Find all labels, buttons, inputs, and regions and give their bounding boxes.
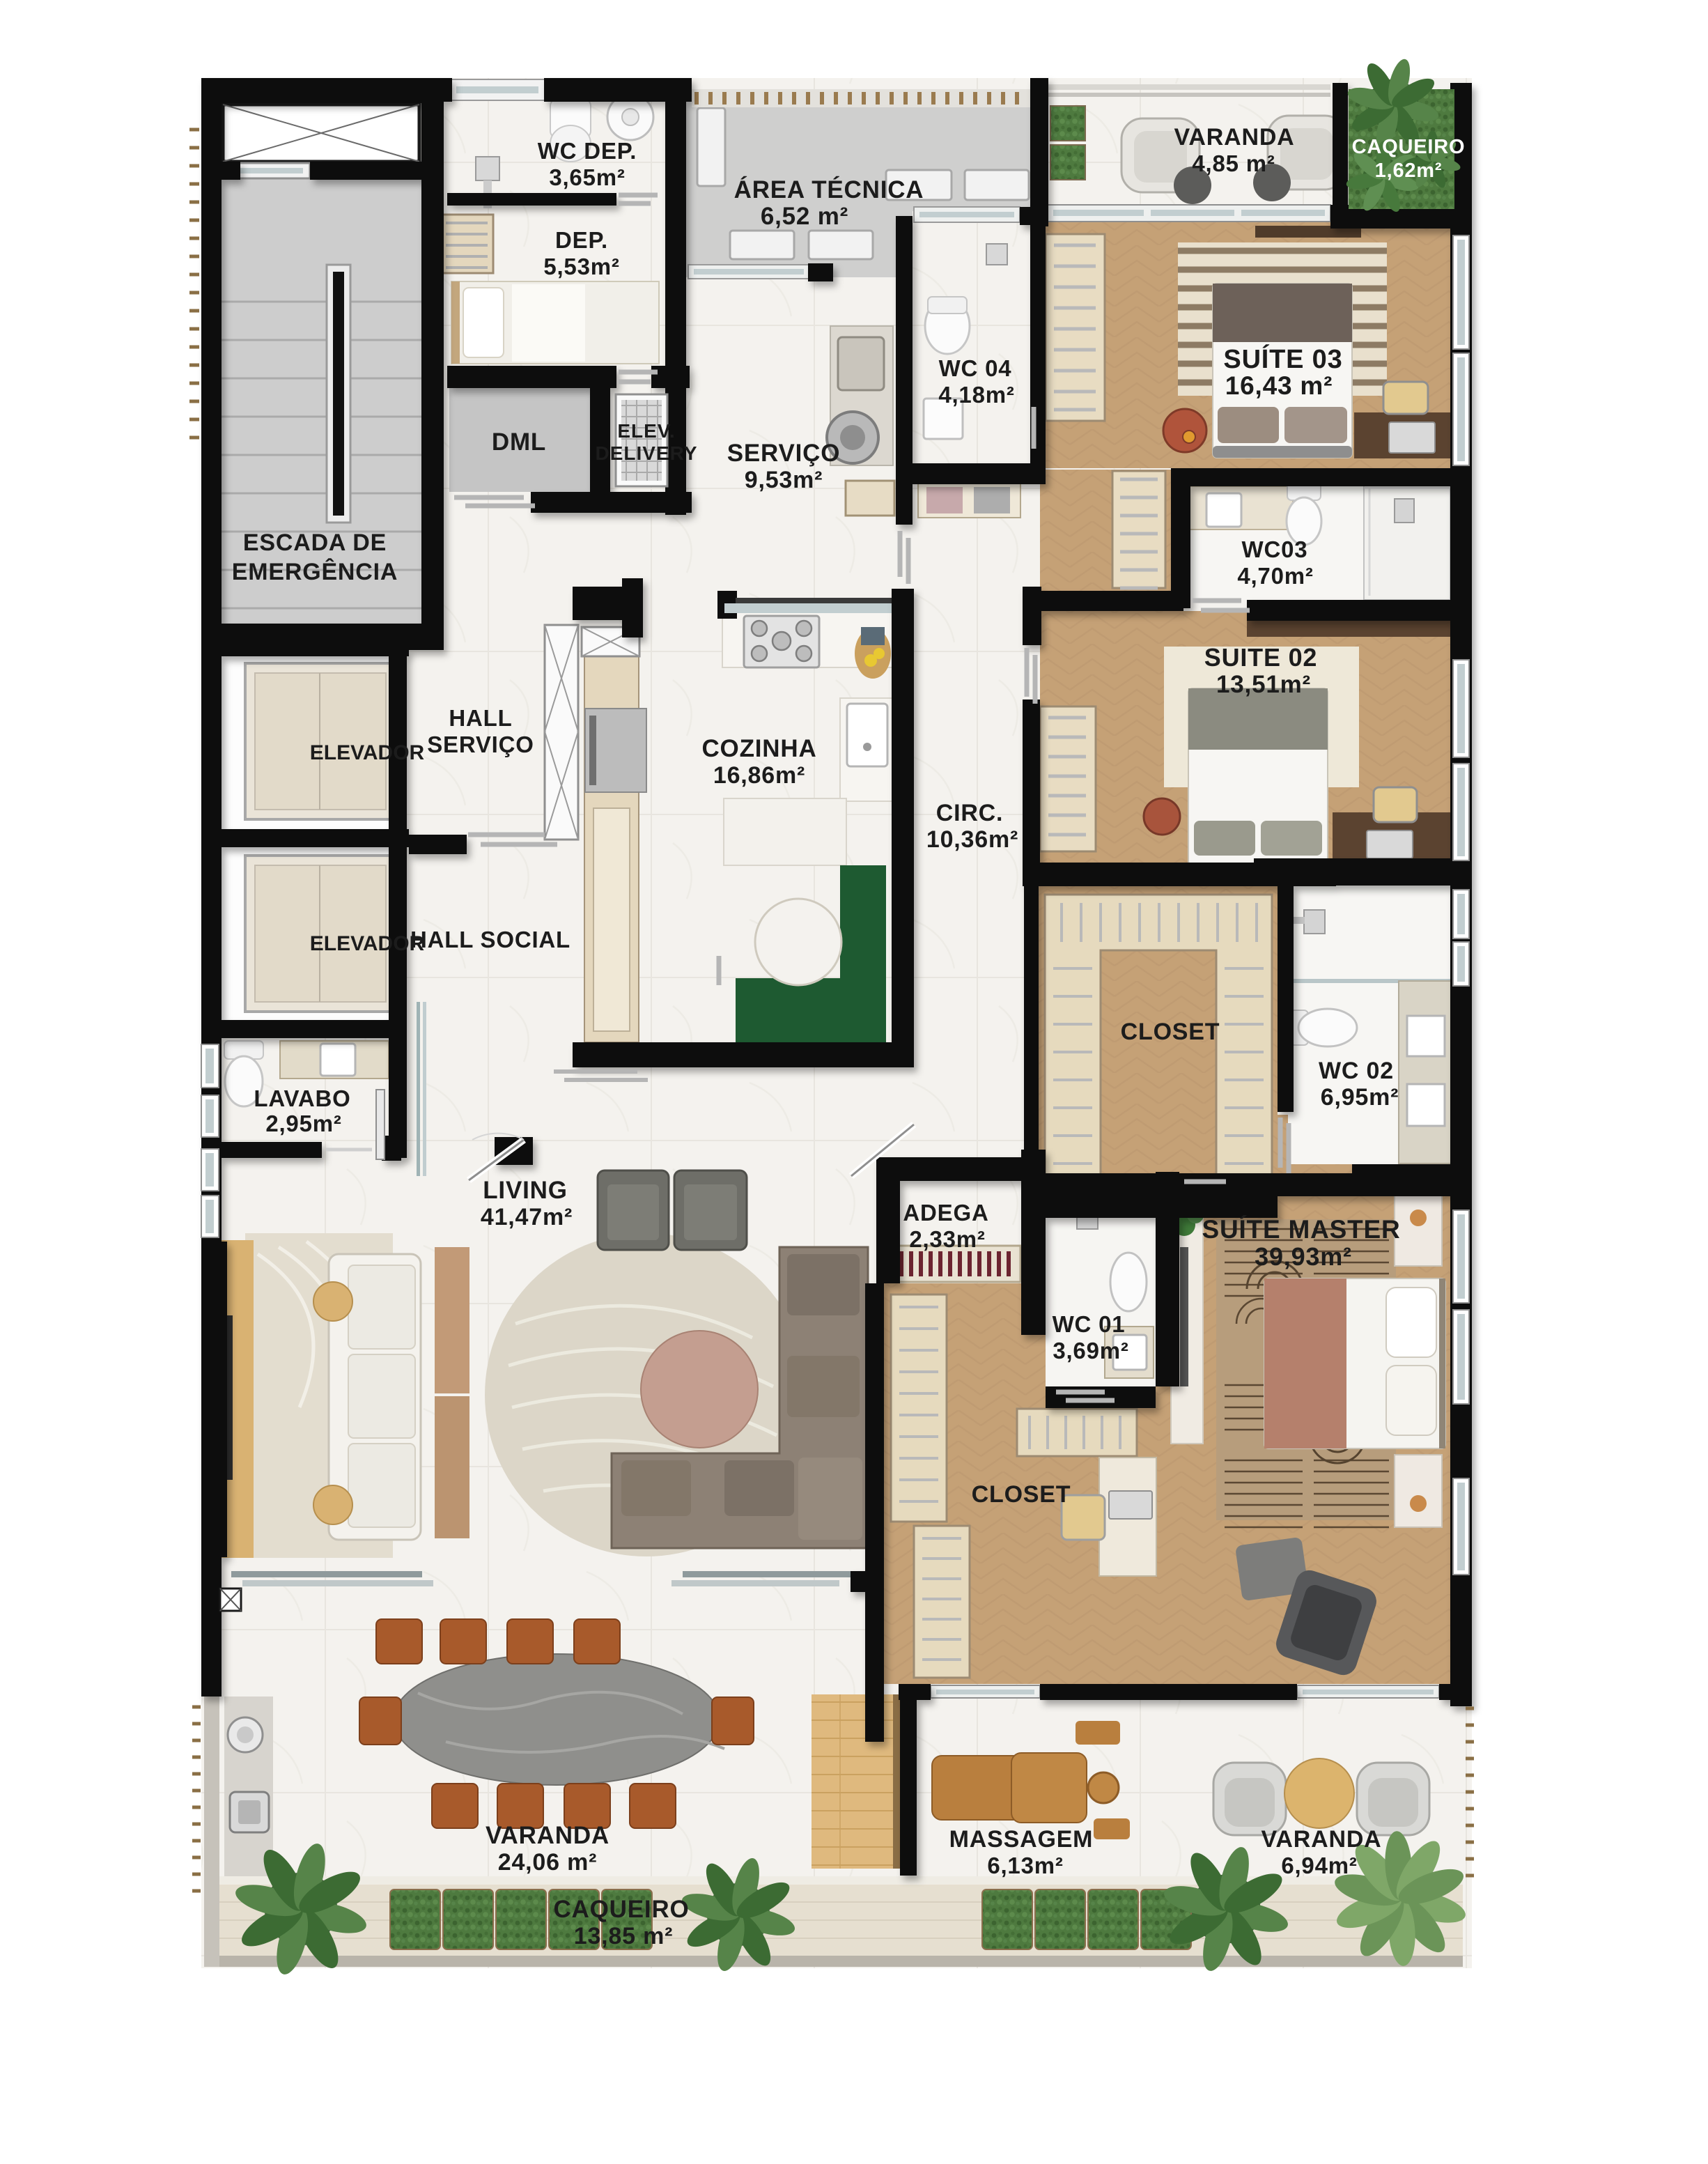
svg-text:39,93m²: 39,93m² bbox=[1255, 1242, 1352, 1271]
svg-text:10,36m²: 10,36m² bbox=[926, 826, 1018, 853]
svg-text:5,53m²: 5,53m² bbox=[543, 254, 619, 279]
svg-text:CAQUEIRO: CAQUEIRO bbox=[1352, 136, 1466, 158]
svg-text:COZINHA: COZINHA bbox=[701, 735, 816, 762]
svg-text:SUÍTE 03: SUÍTE 03 bbox=[1223, 343, 1342, 374]
svg-text:2,95m²: 2,95m² bbox=[265, 1111, 341, 1136]
svg-text:6,52 m²: 6,52 m² bbox=[761, 203, 848, 230]
svg-text:EMERGÊNCIA: EMERGÊNCIA bbox=[232, 559, 398, 585]
svg-text:DELIVERY: DELIVERY bbox=[596, 442, 698, 464]
svg-text:ELEV.: ELEV. bbox=[617, 420, 675, 442]
svg-text:DML: DML bbox=[492, 428, 546, 456]
svg-text:LIVING: LIVING bbox=[483, 1177, 567, 1204]
svg-text:CLOSET: CLOSET bbox=[1121, 1019, 1220, 1045]
svg-text:HALL SOCIAL: HALL SOCIAL bbox=[410, 927, 570, 952]
svg-text:13,85 m²: 13,85 m² bbox=[574, 1923, 673, 1949]
svg-text:SERVIÇO: SERVIÇO bbox=[427, 732, 534, 757]
svg-text:6,94m²: 6,94m² bbox=[1281, 1853, 1357, 1878]
svg-text:VARANDA: VARANDA bbox=[1174, 124, 1294, 150]
svg-text:1,62m²: 1,62m² bbox=[1375, 160, 1443, 182]
svg-text:DEP.: DEP. bbox=[555, 227, 608, 253]
svg-text:ADEGA: ADEGA bbox=[903, 1200, 988, 1226]
svg-text:41,47m²: 41,47m² bbox=[481, 1204, 573, 1230]
svg-text:CAQUEIRO: CAQUEIRO bbox=[553, 1896, 689, 1923]
svg-text:SERVIÇO: SERVIÇO bbox=[727, 440, 841, 467]
svg-text:CLOSET: CLOSET bbox=[972, 1481, 1071, 1508]
svg-text:13,51m²: 13,51m² bbox=[1216, 671, 1311, 698]
svg-text:6,95m²: 6,95m² bbox=[1321, 1084, 1399, 1111]
svg-text:16,86m²: 16,86m² bbox=[713, 762, 805, 789]
svg-text:4,18m²: 4,18m² bbox=[938, 382, 1014, 408]
svg-text:HALL: HALL bbox=[449, 705, 512, 731]
svg-text:SUITE 02: SUITE 02 bbox=[1204, 643, 1317, 672]
svg-text:WC DEP.: WC DEP. bbox=[538, 138, 637, 164]
svg-text:VARANDA: VARANDA bbox=[1261, 1826, 1381, 1853]
svg-text:VARANDA: VARANDA bbox=[486, 1822, 610, 1849]
svg-text:4,85 m²: 4,85 m² bbox=[1192, 150, 1275, 176]
svg-text:3,69m²: 3,69m² bbox=[1053, 1338, 1128, 1363]
svg-text:16,43 m²: 16,43 m² bbox=[1225, 371, 1333, 400]
svg-text:24,06 m²: 24,06 m² bbox=[498, 1849, 597, 1876]
svg-text:WC 04: WC 04 bbox=[939, 355, 1012, 381]
svg-text:2,33m²: 2,33m² bbox=[909, 1226, 985, 1252]
svg-text:6,13m²: 6,13m² bbox=[987, 1853, 1063, 1878]
svg-text:WC 02: WC 02 bbox=[1319, 1058, 1394, 1084]
svg-text:ÁREA TÉCNICA: ÁREA TÉCNICA bbox=[734, 176, 924, 203]
svg-text:WC03: WC03 bbox=[1242, 536, 1308, 562]
svg-text:ESCADA DE: ESCADA DE bbox=[243, 530, 387, 556]
svg-text:3,65m²: 3,65m² bbox=[549, 164, 625, 190]
svg-text:CIRC.: CIRC. bbox=[936, 800, 1004, 826]
svg-text:MASSAGEM: MASSAGEM bbox=[949, 1826, 1094, 1853]
svg-text:ELEVADOR: ELEVADOR bbox=[310, 932, 425, 955]
svg-text:4,70m²: 4,70m² bbox=[1237, 563, 1313, 589]
svg-text:WC 01: WC 01 bbox=[1053, 1311, 1126, 1337]
svg-text:SUÍTE MASTER: SUÍTE MASTER bbox=[1202, 1215, 1400, 1244]
svg-text:ELEVADOR: ELEVADOR bbox=[310, 741, 425, 764]
svg-text:LAVABO: LAVABO bbox=[254, 1085, 350, 1111]
svg-text:9,53m²: 9,53m² bbox=[745, 467, 823, 493]
